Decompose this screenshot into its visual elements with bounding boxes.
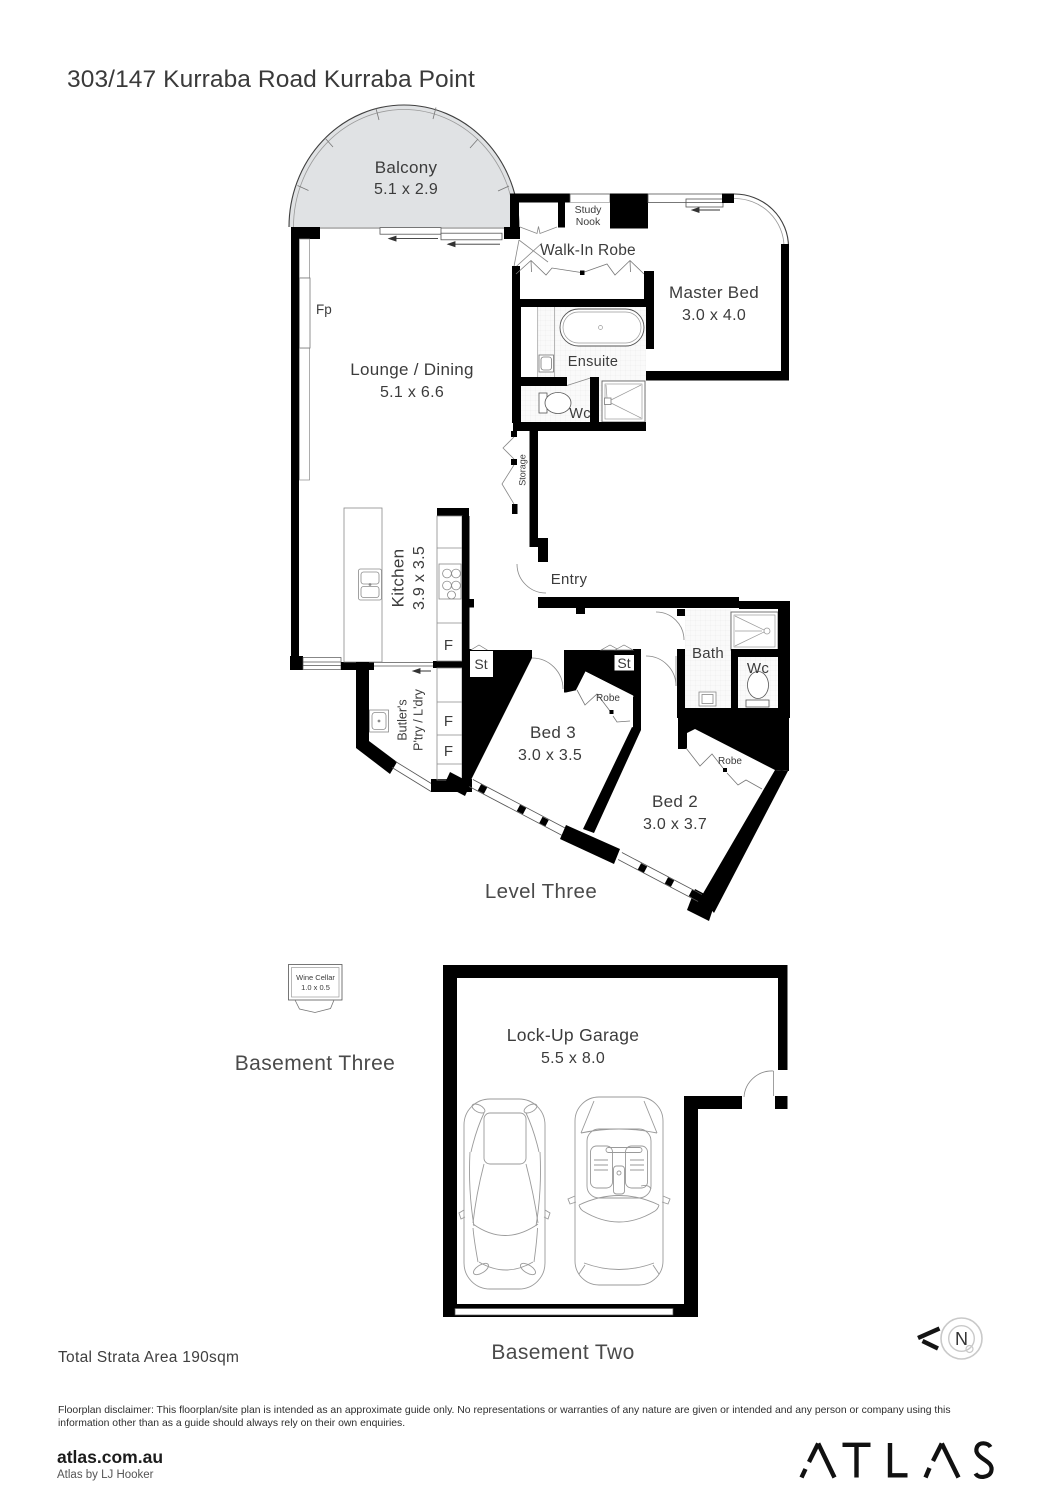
svg-text:St: St bbox=[617, 655, 630, 671]
svg-text:Basement Three: Basement Three bbox=[235, 1052, 395, 1075]
svg-text:Bed 3: Bed 3 bbox=[530, 723, 576, 742]
svg-text:F: F bbox=[444, 637, 453, 654]
svg-text:Total Strata Area 190sqm: Total Strata Area 190sqm bbox=[58, 1349, 239, 1366]
svg-text:Master Bed: Master Bed bbox=[669, 283, 759, 302]
svg-text:1.0 x 0.5: 1.0 x 0.5 bbox=[301, 983, 330, 992]
svg-text:Atlas by LJ Hooker: Atlas by LJ Hooker bbox=[57, 1469, 154, 1481]
svg-text:St: St bbox=[474, 656, 487, 672]
svg-text:Wine Cellar: Wine Cellar bbox=[296, 973, 335, 982]
svg-text:N: N bbox=[955, 1329, 968, 1349]
svg-text:Walk-In Robe: Walk-In Robe bbox=[540, 242, 636, 259]
svg-text:Floorplan disclaimer: This flo: Floorplan disclaimer: This floorplan/sit… bbox=[58, 1405, 951, 1416]
svg-text:Robe: Robe bbox=[718, 756, 742, 767]
svg-text:Bath: Bath bbox=[692, 645, 724, 662]
svg-text:Fp: Fp bbox=[316, 302, 332, 317]
svg-text:Nook: Nook bbox=[576, 216, 601, 228]
svg-text:Bed 2: Bed 2 bbox=[652, 792, 698, 811]
svg-text:Wc: Wc bbox=[747, 660, 769, 677]
svg-text:P'try / L'dry: P'try / L'dry bbox=[411, 688, 425, 750]
svg-text:303/147 Kurraba Road Kurraba P: 303/147 Kurraba Road Kurraba Point bbox=[67, 66, 475, 93]
svg-text:Robe: Robe bbox=[596, 693, 620, 704]
svg-text:atlas.com.au: atlas.com.au bbox=[57, 1447, 163, 1467]
svg-text:F: F bbox=[444, 713, 453, 730]
svg-text:Kitchen: Kitchen bbox=[388, 549, 407, 608]
svg-text:Level Three: Level Three bbox=[485, 880, 597, 903]
svg-text:5.5 x 8.0: 5.5 x 8.0 bbox=[541, 1050, 605, 1067]
svg-text:Ensuite: Ensuite bbox=[568, 354, 618, 370]
svg-text:3.9 x 3.5: 3.9 x 3.5 bbox=[411, 546, 428, 610]
svg-text:information other than as a gu: information other than as a guide should… bbox=[58, 1418, 405, 1429]
svg-text:Lock-Up Garage: Lock-Up Garage bbox=[507, 1025, 640, 1045]
svg-text:Entry: Entry bbox=[551, 571, 588, 588]
svg-text:Wc: Wc bbox=[569, 406, 591, 422]
svg-text:Balcony: Balcony bbox=[375, 158, 438, 177]
svg-text:5.1 x 6.6: 5.1 x 6.6 bbox=[380, 384, 444, 401]
svg-text:Lounge / Dining: Lounge / Dining bbox=[350, 360, 474, 379]
svg-text:F: F bbox=[444, 743, 453, 760]
svg-text:3.0 x 4.0: 3.0 x 4.0 bbox=[682, 307, 746, 324]
svg-text:Study: Study bbox=[575, 204, 603, 216]
svg-text:Storage: Storage bbox=[517, 454, 527, 486]
svg-text:5.1 x 2.9: 5.1 x 2.9 bbox=[374, 181, 438, 198]
svg-text:3.0 x 3.7: 3.0 x 3.7 bbox=[643, 816, 707, 833]
svg-text:3.0 x 3.5: 3.0 x 3.5 bbox=[518, 747, 582, 764]
svg-text:Butler's: Butler's bbox=[395, 699, 409, 740]
svg-text:Basement Two: Basement Two bbox=[491, 1341, 634, 1364]
